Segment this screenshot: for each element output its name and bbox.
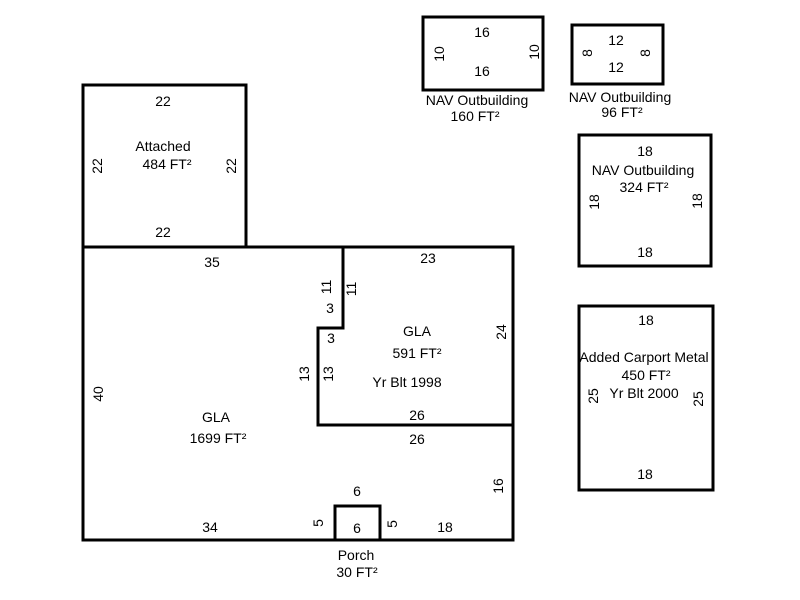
attached-garage-dim-left: 22 [90, 158, 104, 174]
main-dwelling-porch-dim-right: 5 [385, 520, 399, 528]
main-dwelling-partition-dim-3-lower: 3 [327, 331, 335, 345]
nav-outbuilding-96-dim-bottom: 12 [608, 60, 624, 74]
added-carport-metal-year: Yr Blt 2000 [609, 386, 678, 400]
main-dwelling-gla2-year: Yr Blt 1998 [372, 375, 441, 389]
attached-garage-dim-top: 22 [155, 94, 171, 108]
sketch-lines [0, 0, 800, 600]
nav-outbuilding-324-dim-top: 18 [637, 144, 653, 158]
attached-garage-dim-bottom: 22 [155, 225, 171, 239]
nav-outbuilding-160-dim-left: 10 [432, 46, 446, 62]
attached-garage-dim-right: 22 [224, 158, 238, 174]
nav-outbuilding-160-name: NAV Outbuilding [426, 93, 528, 107]
sketch-canvas: 22Attached484 FT²222222352340GLA1699 FT²… [0, 0, 800, 600]
attached-garage-name: Attached [135, 139, 190, 153]
nav-outbuilding-324-dim-bottom: 18 [637, 245, 653, 259]
nav-outbuilding-96-dim-right: 8 [638, 49, 652, 57]
main-dwelling-dim-left: 40 [91, 386, 105, 402]
nav-outbuilding-96-name: NAV Outbuilding [569, 90, 671, 104]
main-dwelling-gla-name: GLA [202, 410, 230, 424]
main-dwelling-dim-right-lower: 16 [491, 478, 505, 494]
main-dwelling-partition-dim-11-outer: 11 [319, 280, 333, 295]
main-dwelling-partition-dim-26-outer: 26 [409, 432, 425, 446]
nav-outbuilding-324-name: NAV Outbuilding [592, 163, 694, 177]
attached-garage-area: 484 FT² [142, 157, 191, 171]
main-dwelling-porch-dim-inner: 6 [353, 521, 361, 535]
nav-outbuilding-324-area: 324 FT² [619, 180, 668, 194]
main-dwelling-outline [83, 247, 513, 540]
added-carport-metal-dim-bottom: 18 [637, 467, 653, 481]
added-carport-metal-name: Added Carport Metal [579, 350, 708, 364]
added-carport-metal-dim-top: 18 [638, 313, 654, 327]
main-dwelling-porch-dim-top: 6 [353, 484, 361, 498]
nav-outbuilding-160-dim-bottom: 16 [474, 64, 490, 78]
nav-outbuilding-96-dim-left: 8 [580, 49, 594, 57]
main-dwelling-partition-dim-26-inner: 26 [409, 408, 425, 422]
nav-outbuilding-324-dim-left: 18 [587, 194, 601, 210]
nav-outbuilding-324-dim-right: 18 [690, 193, 704, 209]
nav-outbuilding-160-dim-top: 16 [474, 25, 490, 39]
nav-outbuilding-160-dim-right: 10 [527, 44, 541, 60]
nav-outbuilding-96-area: 96 FT² [601, 105, 642, 119]
main-dwelling-dim-bottom-left: 34 [202, 520, 218, 534]
main-dwelling-partition-dim-13-outer: 13 [297, 366, 311, 382]
main-dwelling-dim-top-left: 35 [204, 255, 220, 269]
added-carport-metal-dim-right: 25 [691, 391, 705, 407]
main-dwelling-partition-dim-11-inner: 11 [344, 282, 358, 297]
nav-outbuilding-96-dim-top: 12 [608, 33, 624, 47]
main-dwelling-porch-dim-left: 5 [311, 519, 325, 527]
added-carport-metal-dim-left: 25 [586, 388, 600, 404]
main-dwelling-dim-bottom-right: 18 [437, 520, 453, 534]
main-dwelling-partition-dim-13-inner: 13 [321, 366, 335, 382]
main-dwelling-gla2-name: GLA [403, 324, 431, 338]
main-dwelling-dim-top-right: 23 [420, 251, 436, 265]
main-dwelling-gla2-area: 591 FT² [392, 346, 441, 360]
main-dwelling-porch-name: Porch [338, 548, 375, 562]
main-dwelling-dim-right-upper: 24 [494, 324, 508, 340]
main-dwelling-partition-dim-3-upper: 3 [326, 301, 334, 315]
main-dwelling-gla-area: 1699 FT² [190, 431, 247, 445]
added-carport-metal-area: 450 FT² [621, 368, 670, 382]
nav-outbuilding-160-area: 160 FT² [450, 109, 499, 123]
main-dwelling-porch-area: 30 FT² [336, 565, 377, 579]
